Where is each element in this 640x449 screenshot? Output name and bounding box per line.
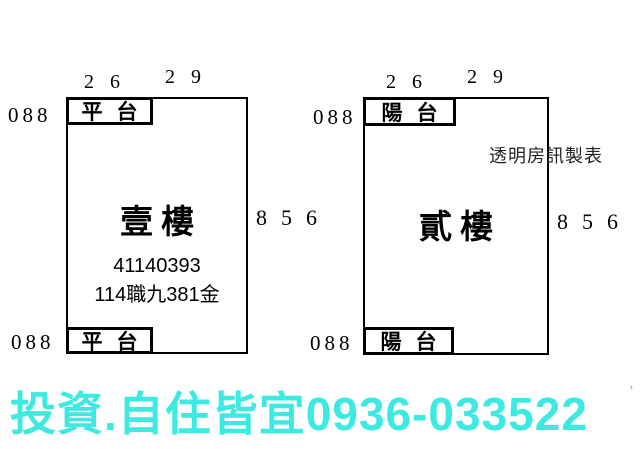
scan-artifact-mark: ’ bbox=[629, 384, 634, 400]
unit1-code-line2: 114職九381金 bbox=[66, 278, 248, 307]
unit1-bottom-terrace-box: 平台 bbox=[66, 327, 153, 354]
unit2-dimension-right: 856 bbox=[557, 209, 632, 235]
unit1-bottom-terrace-label: 平台 bbox=[68, 326, 152, 356]
unit2-dimension-left-top: 088 bbox=[313, 105, 357, 130]
unit2-bottom-balcony-box: 陽台 bbox=[363, 327, 454, 355]
unit2-top-balcony-box: 陽台 bbox=[363, 97, 456, 126]
floorplan-canvas: 平台 平台 26 29 088 088 856 壹樓 41140393 114職… bbox=[0, 0, 640, 449]
unit1-dimension-top-right: 29 bbox=[165, 66, 217, 89]
unit1-code-line1: 41140393 bbox=[66, 255, 248, 278]
unit2-floor-name: 貳樓 bbox=[363, 200, 549, 248]
unit1-dimension-top-left: 26 bbox=[84, 71, 136, 94]
unit2-bottom-balcony-label: 陽台 bbox=[367, 326, 451, 356]
unit1-top-terrace-label: 平台 bbox=[68, 96, 152, 126]
unit2-dimension-top-right: 29 bbox=[467, 66, 519, 89]
unit1-dimension-left-top: 088 bbox=[8, 103, 52, 128]
unit2-dimension-left-bottom: 088 bbox=[310, 331, 354, 356]
advert-phone-text: 投資.自住皆宜0936-033522 bbox=[10, 378, 588, 444]
unit1-dimension-right: 856 bbox=[256, 205, 331, 231]
unit1-dimension-left-bottom: 088 bbox=[11, 330, 55, 355]
unit1-top-terrace-box: 平台 bbox=[66, 97, 153, 125]
agency-watermark: 透明房訊製表 bbox=[489, 142, 603, 168]
unit2-dimension-top-left: 26 bbox=[386, 71, 438, 94]
unit1-floor-name: 壹樓 bbox=[66, 195, 248, 243]
unit2-top-balcony-label: 陽台 bbox=[368, 97, 452, 127]
